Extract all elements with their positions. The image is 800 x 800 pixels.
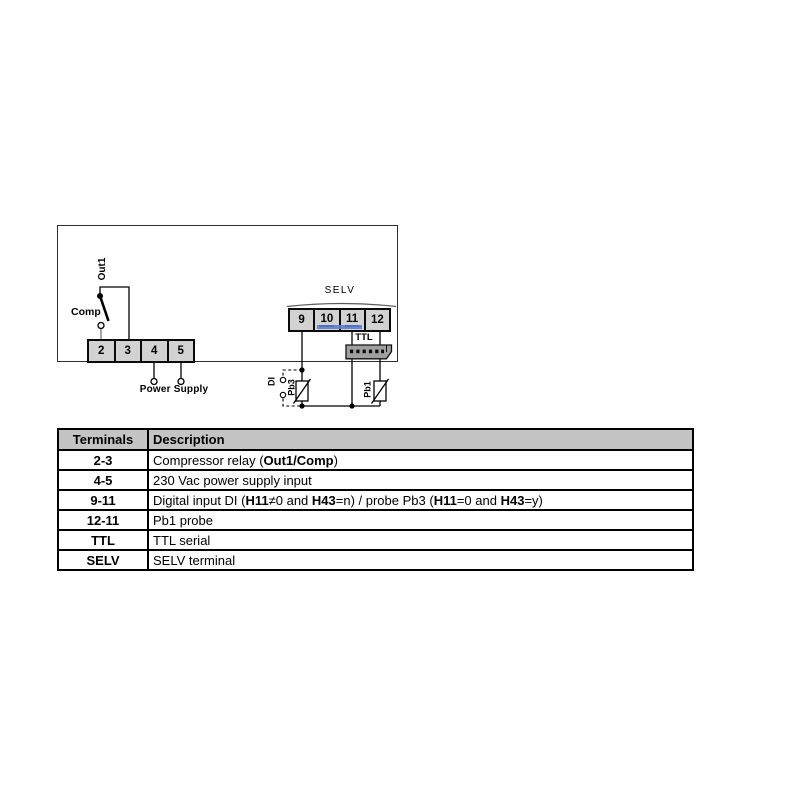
description-bold-segment: H11 bbox=[245, 493, 268, 508]
table-row: 2-3Compressor relay (Out1/Comp) bbox=[58, 450, 693, 470]
out1-label: Out1 bbox=[97, 249, 109, 289]
table-row: 4-5230 Vac power supply input bbox=[58, 470, 693, 490]
description-cell: 230 Vac power supply input bbox=[148, 470, 693, 490]
power-supply-pins-icon bbox=[151, 363, 184, 385]
terminal-cell: 2-3 bbox=[58, 450, 148, 470]
table-row: 12-11Pb1 probe bbox=[58, 510, 693, 530]
terminal-12-label: 12 bbox=[371, 314, 384, 326]
terminal-cell: TTL bbox=[58, 530, 148, 550]
description-segment: 230 Vac power supply input bbox=[153, 473, 312, 488]
description-bold-segment: H11 bbox=[434, 493, 457, 508]
description-bold-segment: H43 bbox=[312, 493, 336, 508]
terminal-2: 2 bbox=[87, 339, 115, 363]
description-segment: Pb1 probe bbox=[153, 513, 213, 528]
description-segment: ) bbox=[334, 453, 338, 468]
ttl-label: TTL bbox=[349, 332, 379, 343]
terminal-4: 4 bbox=[141, 339, 168, 363]
terminals-table: Terminals Description 2-3Compressor rela… bbox=[57, 428, 694, 571]
description-segment: =y) bbox=[524, 493, 542, 508]
description-cell: TTL serial bbox=[148, 530, 693, 550]
pb1-label: Pb1 bbox=[363, 373, 374, 407]
terminal-4-label: 4 bbox=[151, 345, 157, 357]
power-supply-label: Power Supply bbox=[122, 384, 226, 395]
di-label: DI bbox=[267, 368, 278, 396]
terminal-3: 3 bbox=[115, 339, 142, 363]
terminal-cell: 4-5 bbox=[58, 470, 148, 490]
description-cell: SELV terminal bbox=[148, 550, 693, 570]
table-header-row: Terminals Description bbox=[58, 429, 693, 450]
description-segment: =0 and bbox=[457, 493, 501, 508]
description-segment: SELV terminal bbox=[153, 553, 235, 568]
wiring-svg bbox=[0, 0, 800, 800]
terminal-12: 12 bbox=[365, 308, 391, 332]
description-segment: =n) / probe Pb3 ( bbox=[336, 493, 434, 508]
description-cell: Digital input DI (H11≠0 and H43=n) / pro… bbox=[148, 490, 693, 510]
description-segment: Compressor relay ( bbox=[153, 453, 264, 468]
terminal-5-label: 5 bbox=[178, 345, 184, 357]
pb3-label: Pb3 bbox=[287, 371, 298, 405]
description-segment: ≠0 and bbox=[269, 493, 312, 508]
terminal-5: 5 bbox=[168, 339, 196, 363]
description-bold-segment: Out1/Comp bbox=[264, 453, 334, 468]
description-cell: Pb1 probe bbox=[148, 510, 693, 530]
pb1-thermistor-icon bbox=[372, 379, 389, 404]
header-description: Description bbox=[148, 429, 693, 450]
terminal-cell: 12-11 bbox=[58, 510, 148, 530]
terminal-cell: SELV bbox=[58, 550, 148, 570]
terminal-2-label: 2 bbox=[98, 345, 104, 357]
description-bold-segment: H43 bbox=[501, 493, 525, 508]
selv-label: SELV bbox=[314, 285, 366, 296]
header-terminals: Terminals bbox=[58, 429, 148, 450]
terminal-block-left: 2 3 4 5 bbox=[87, 339, 195, 363]
description-segment: Digital input DI ( bbox=[153, 493, 245, 508]
description-segment: TTL serial bbox=[153, 533, 210, 548]
table-row: 9-11Digital input DI (H11≠0 and H43=n) /… bbox=[58, 490, 693, 510]
terminal-cell: 9-11 bbox=[58, 490, 148, 510]
terminal-9-label: 9 bbox=[298, 314, 304, 326]
terminal-10-11-highlight-bar bbox=[317, 325, 362, 329]
comp-label: Comp bbox=[71, 306, 101, 318]
terminal-3-label: 3 bbox=[125, 345, 131, 357]
terminal-9: 9 bbox=[288, 308, 314, 332]
table-row: TTLTTL serial bbox=[58, 530, 693, 550]
table-row: SELVSELV terminal bbox=[58, 550, 693, 570]
description-cell: Compressor relay (Out1/Comp) bbox=[148, 450, 693, 470]
